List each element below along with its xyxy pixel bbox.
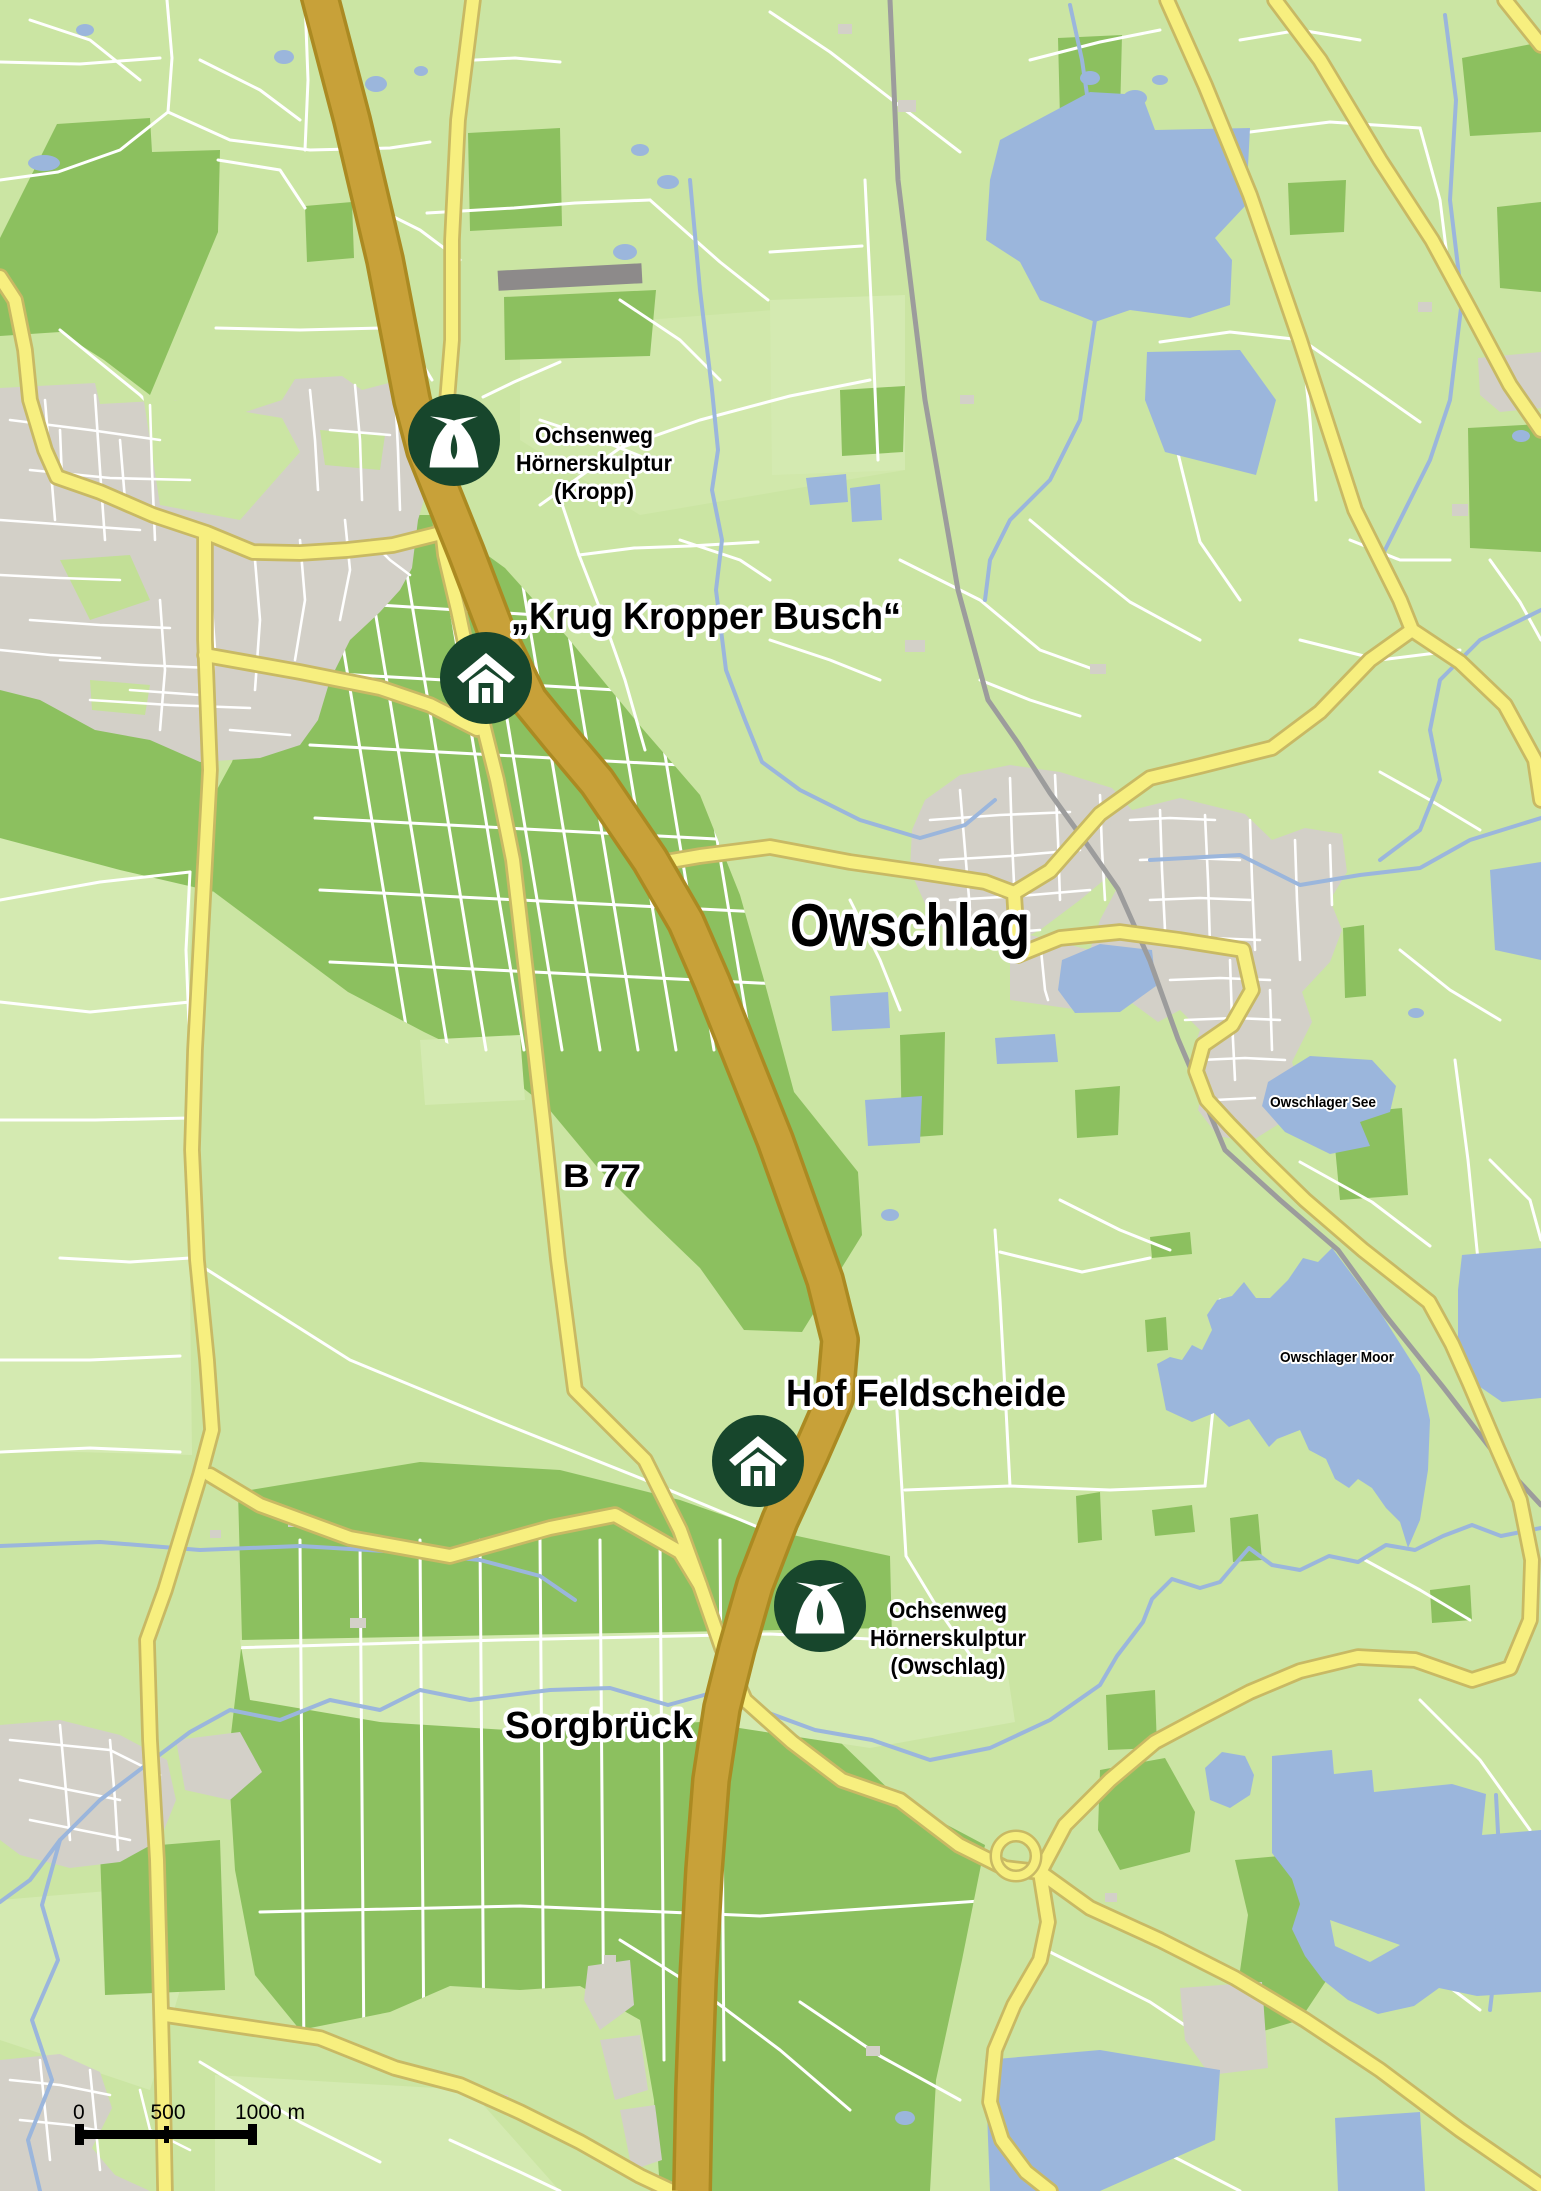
svg-text:Hörnerskulptur: Hörnerskulptur <box>516 450 672 476</box>
svg-text:Ochsenweg: Ochsenweg <box>889 1597 1007 1623</box>
svg-text:(Owschlag): (Owschlag) <box>891 1653 1006 1679</box>
svg-text:(Kropp): (Kropp) <box>554 478 634 504</box>
svg-text:Owschlager See: Owschlager See <box>1270 1094 1376 1111</box>
svg-text:Hörnerskulptur: Hörnerskulptur <box>870 1625 1026 1651</box>
svg-text:500: 500 <box>150 2101 185 2124</box>
svg-text:„Krug Kropper Busch“: „Krug Kropper Busch“ <box>511 596 901 638</box>
svg-text:Owschlager Moor: Owschlager Moor <box>1280 1349 1394 1366</box>
svg-text:Ochsenweg: Ochsenweg <box>535 422 653 448</box>
svg-text:Hof Feldscheide: Hof Feldscheide <box>786 1373 1066 1415</box>
svg-text:B 77: B 77 <box>563 1158 641 1194</box>
svg-text:Owschlag: Owschlag <box>790 892 1030 959</box>
svg-text:1000 m: 1000 m <box>235 2101 305 2124</box>
svg-text:Sorgbrück: Sorgbrück <box>505 1705 694 1747</box>
svg-text:0: 0 <box>73 2101 85 2124</box>
